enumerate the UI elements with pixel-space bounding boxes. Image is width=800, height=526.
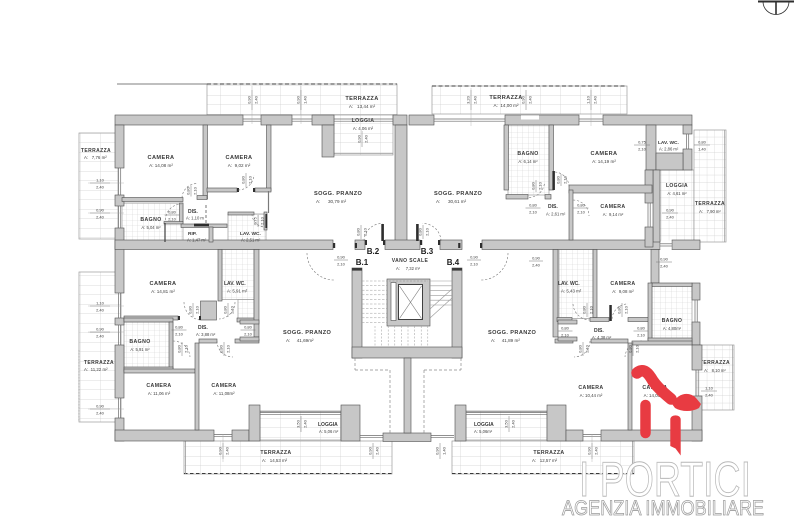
svg-text:A: 30,79 m²: A: 30,79 m² (316, 199, 347, 204)
svg-text:1,40: 1,40 (303, 95, 308, 104)
svg-text:0,75: 0,75 (253, 216, 258, 225)
svg-text:0,80: 0,80 (617, 305, 622, 314)
svg-text:A: 6,14 m²: A: 6,14 m² (518, 159, 538, 164)
svg-text:2,10: 2,10 (260, 216, 265, 225)
svg-text:LAV. WC.: LAV. WC. (224, 281, 246, 287)
svg-text:2,10: 2,10 (175, 332, 184, 337)
svg-text:A: 11,08m²: A: 11,08m² (213, 391, 235, 396)
svg-text:2,40: 2,40 (96, 185, 105, 190)
svg-text:2,10: 2,10 (230, 305, 235, 314)
svg-text:0,80: 0,80 (223, 305, 228, 314)
svg-text:2,10: 2,10 (577, 210, 586, 215)
svg-text:2,40: 2,40 (666, 215, 675, 220)
svg-text:2,10: 2,10 (193, 186, 198, 195)
svg-text:2,10: 2,10 (363, 227, 368, 236)
svg-text:A: 4,80m²: A: 4,80m² (663, 326, 682, 331)
svg-text:LOGGIA: LOGGIA (666, 183, 688, 189)
svg-text:2,40: 2,40 (96, 334, 105, 339)
svg-text:0,80: 0,80 (529, 203, 538, 208)
svg-text:2,40: 2,40 (705, 393, 714, 398)
svg-text:CAMERA: CAMERA (211, 383, 236, 389)
svg-text:A: 7,32 m²: A: 7,32 m² (396, 266, 421, 271)
svg-text:2,40: 2,40 (364, 134, 369, 143)
svg-text:2,40: 2,40 (473, 95, 478, 104)
svg-text:B.3: B.3 (421, 247, 434, 256)
svg-text:0,75: 0,75 (638, 140, 647, 145)
svg-text:0,80: 0,80 (637, 326, 646, 331)
svg-text:0,90: 0,90 (666, 208, 675, 213)
svg-text:BAGNO: BAGNO (517, 151, 538, 157)
svg-text:A: 14,19 m²: A: 14,19 m² (592, 159, 616, 164)
svg-text:0,80: 0,80 (628, 344, 633, 353)
svg-text:2,10: 2,10 (529, 210, 538, 215)
svg-text:A: 14,81 m²: A: 14,81 m² (151, 289, 175, 294)
svg-text:2,40: 2,40 (511, 419, 516, 428)
svg-text:2,10: 2,10 (638, 147, 647, 152)
svg-text:0,90: 0,90 (337, 255, 346, 260)
svg-text:A: 14,08 m²: A: 14,08 m² (149, 163, 173, 168)
svg-text:B.1: B.1 (356, 258, 369, 267)
svg-text:1,10: 1,10 (96, 178, 105, 183)
svg-text:BAGNO: BAGNO (129, 339, 150, 345)
svg-text:2,40: 2,40 (532, 263, 541, 268)
svg-text:A: 5,04 m²: A: 5,04 m² (141, 225, 161, 230)
svg-text:A: 11,06 m²: A: 11,06 m² (148, 391, 171, 396)
svg-text:A: 9,14 m²: A: 9,14 m² (603, 212, 624, 217)
svg-text:A: 14,53 m²: A: 14,53 m² (262, 458, 288, 463)
svg-text:BAGNO: BAGNO (140, 217, 161, 223)
svg-text:VANO SCALE: VANO SCALE (392, 258, 429, 264)
svg-text:AGENZIA IMMOBILIARE: AGENZIA IMMOBILIARE (562, 496, 764, 520)
svg-text:LOGGIA: LOGGIA (474, 422, 494, 428)
svg-text:CAMERA: CAMERA (591, 151, 618, 157)
svg-text:2,40: 2,40 (375, 446, 380, 455)
svg-text:2,40: 2,40 (254, 95, 259, 104)
svg-text:LAV. WC.: LAV. WC. (658, 140, 679, 146)
svg-text:2,10: 2,10 (589, 305, 594, 314)
svg-text:0,90: 0,90 (357, 134, 362, 143)
svg-text:0,80: 0,80 (356, 227, 361, 236)
svg-text:SOGG. PRANZO: SOGG. PRANZO (283, 330, 332, 336)
svg-text:TERRAZZA: TERRAZZA (81, 148, 111, 154)
svg-text:A: 9,02 m²: A: 9,02 m² (228, 163, 251, 168)
svg-text:A: 5,06 m²: A: 5,06 m² (319, 429, 339, 434)
svg-text:0,80: 0,80 (582, 305, 587, 314)
svg-text:1,10: 1,10 (96, 301, 105, 306)
svg-text:2,10: 2,10 (425, 227, 430, 236)
svg-text:A: 41,89 m²: A: 41,89 m² (491, 338, 520, 343)
svg-text:2,10: 2,10 (563, 175, 568, 184)
svg-text:2,10: 2,10 (635, 344, 640, 353)
svg-text:3,50: 3,50 (296, 419, 301, 428)
svg-text:0,80: 0,80 (531, 181, 536, 190)
svg-text:2,10: 2,10 (248, 175, 253, 184)
svg-text:CAMERA: CAMERA (600, 204, 625, 210)
svg-text:A: 14,00 m²: A: 14,00 m² (493, 103, 518, 108)
svg-text:A: 30,61 m²: A: 30,61 m² (436, 199, 467, 204)
svg-text:LOGGIA: LOGGIA (318, 422, 338, 428)
svg-text:0,80: 0,80 (188, 305, 193, 314)
svg-text:BAGNO: BAGNO (662, 318, 683, 324)
svg-text:2,40: 2,40 (225, 446, 230, 455)
svg-text:1,40: 1,40 (698, 147, 707, 152)
svg-text:3,50: 3,50 (504, 419, 509, 428)
svg-text:1,10: 1,10 (705, 386, 714, 391)
svg-text:DIS.: DIS. (594, 328, 604, 334)
svg-text:2,10: 2,10 (470, 262, 479, 267)
svg-text:0,90: 0,90 (368, 446, 373, 455)
svg-text:0,90: 0,90 (435, 446, 440, 455)
svg-text:TERRAZZA: TERRAZZA (260, 450, 291, 456)
svg-text:2,40: 2,40 (660, 264, 669, 269)
svg-text:CAMERA: CAMERA (150, 281, 177, 287)
svg-text:2,10: 2,10 (337, 262, 346, 267)
svg-text:0,90: 0,90 (218, 446, 223, 455)
svg-text:0,80: 0,80 (186, 186, 191, 195)
svg-text:SOGG. PRANZO: SOGG. PRANZO (314, 191, 363, 197)
svg-text:A: 5,91 m²: A: 5,91 m² (227, 289, 248, 294)
svg-text:A: 4,06 m²: A: 4,06 m² (353, 126, 374, 131)
svg-text:A: 13,44 m²: A: 13,44 m² (349, 104, 376, 109)
svg-text:A: 5,06m²: A: 5,06m² (474, 429, 493, 434)
svg-text:2,10: 2,10 (244, 332, 253, 337)
svg-text:0,90: 0,90 (96, 404, 105, 409)
svg-text:2,10: 2,10 (624, 305, 629, 314)
svg-text:0,90: 0,90 (521, 95, 526, 104)
svg-text:2,40: 2,40 (593, 95, 598, 104)
svg-text:0,80: 0,80 (175, 325, 184, 330)
svg-text:TERRAZZA: TERRAZZA (84, 360, 114, 366)
svg-text:0,80: 0,80 (578, 344, 583, 353)
svg-text:DIS.: DIS. (548, 204, 558, 210)
svg-text:0,80: 0,80 (241, 175, 246, 184)
svg-text:3,20: 3,20 (466, 95, 471, 104)
svg-text:0,80: 0,80 (698, 140, 707, 145)
svg-text:0,90: 0,90 (660, 257, 669, 262)
svg-text:A: 5,43 m²: A: 5,43 m² (561, 289, 582, 294)
svg-text:A: 10,44 m²: A: 10,44 m² (580, 393, 603, 398)
svg-text:CAMERA: CAMERA (578, 385, 603, 391)
svg-text:LAV. WC.: LAV. WC. (558, 281, 580, 287)
svg-text:2,40: 2,40 (96, 411, 105, 416)
svg-text:DIS.: DIS. (198, 325, 208, 331)
svg-text:0,90: 0,90 (247, 95, 252, 104)
svg-text:SOGG. PRANZO: SOGG. PRANZO (434, 191, 483, 197)
svg-text:A: 1,10 m: A: 1,10 m (186, 216, 204, 221)
svg-text:2,40: 2,40 (96, 308, 105, 313)
svg-text:A: 11,22 m²: A: 11,22 m² (84, 367, 108, 372)
svg-text:A: 7,90 m²: A: 7,90 m² (699, 209, 721, 214)
svg-text:0,90: 0,90 (296, 95, 301, 104)
svg-text:A: 8,10 m²: A: 8,10 m² (704, 368, 726, 373)
svg-text:2,10: 2,10 (184, 344, 189, 353)
svg-text:TERRAZZA: TERRAZZA (695, 201, 725, 207)
svg-text:DIS.: DIS. (188, 209, 198, 215)
svg-text:CAMERA: CAMERA (226, 155, 253, 161)
svg-text:2,40: 2,40 (96, 215, 105, 220)
svg-text:A: 2,51 m²: A: 2,51 m² (241, 238, 261, 243)
svg-text:0,80: 0,80 (177, 344, 182, 353)
svg-text:LAV. WC.: LAV. WC. (240, 231, 261, 237)
svg-text:0,90: 0,90 (96, 327, 105, 332)
svg-text:A: 41,69m²: A: 41,69m² (286, 338, 314, 343)
svg-text:A: 2,86 m²: A: 2,86 m² (659, 147, 679, 152)
svg-text:0,80: 0,80 (219, 344, 224, 353)
svg-text:0,80: 0,80 (168, 210, 177, 215)
svg-text:0,80: 0,80 (577, 203, 586, 208)
svg-text:A: 9,08 m²: A: 9,08 m² (612, 289, 634, 294)
svg-text:0,90: 0,90 (96, 208, 105, 213)
svg-text:2,10: 2,10 (195, 305, 200, 314)
svg-text:TERRAZZA: TERRAZZA (345, 96, 378, 102)
svg-text:A: 4,38 m²: A: 4,38 m² (592, 335, 612, 340)
svg-text:A: 12,57 m²: A: 12,57 m² (532, 458, 558, 463)
svg-text:2,40: 2,40 (528, 95, 533, 104)
svg-text:TERRAZZA: TERRAZZA (700, 360, 730, 366)
svg-text:RIP.: RIP. (188, 231, 197, 237)
svg-text:2,10: 2,10 (585, 344, 590, 353)
svg-text:2,10: 2,10 (561, 333, 570, 338)
svg-text:CAMERA: CAMERA (148, 155, 175, 161)
svg-text:0,80: 0,80 (244, 325, 253, 330)
svg-text:CAMERA: CAMERA (146, 383, 171, 389)
svg-text:TERRAZZA: TERRAZZA (533, 450, 564, 456)
svg-text:2,10: 2,10 (226, 344, 231, 353)
svg-text:2,10: 2,10 (637, 333, 646, 338)
svg-text:1,40: 1,40 (442, 446, 447, 455)
svg-text:2,40: 2,40 (303, 419, 308, 428)
svg-text:0,80: 0,80 (556, 175, 561, 184)
svg-text:A: 5,91 m²: A: 5,91 m² (130, 347, 150, 352)
svg-text:2,10: 2,10 (538, 181, 543, 190)
svg-text:A: 7,76 m²: A: 7,76 m² (84, 155, 107, 160)
svg-text:TERRAZZA: TERRAZZA (489, 95, 522, 101)
svg-text:SOGG. PRANZO: SOGG. PRANZO (488, 330, 537, 336)
svg-text:0,90: 0,90 (470, 255, 479, 260)
svg-text:A: 2,61 m²: A: 2,61 m² (546, 212, 566, 217)
svg-text:2,10: 2,10 (168, 217, 177, 222)
svg-text:0,80: 0,80 (418, 227, 423, 236)
svg-text:A: 1,47 m²: A: 1,47 m² (187, 238, 207, 243)
svg-text:A: 3,88 m²: A: 3,88 m² (196, 332, 216, 337)
svg-text:B.2: B.2 (367, 247, 380, 256)
svg-text:B.4: B.4 (447, 258, 460, 267)
svg-text:1,10: 1,10 (586, 95, 591, 104)
svg-text:0,90: 0,90 (532, 256, 541, 261)
svg-text:CAMERA: CAMERA (610, 281, 635, 287)
svg-text:0,80: 0,80 (561, 326, 570, 331)
svg-text:A: 4,61 m²: A: 4,61 m² (667, 191, 687, 196)
